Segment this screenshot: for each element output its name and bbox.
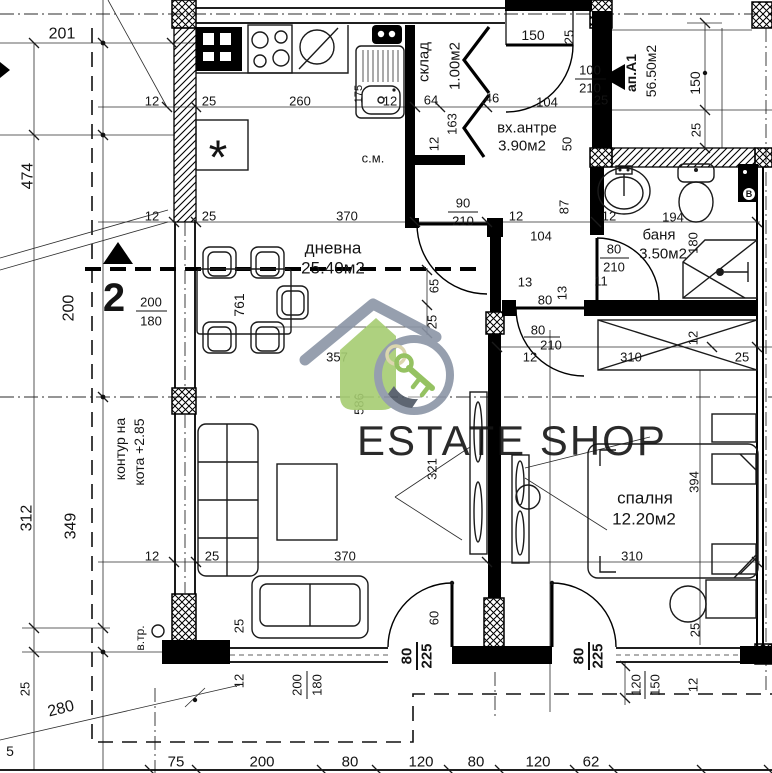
dimension-label: 163 bbox=[445, 113, 460, 135]
fridge-symbol: * bbox=[209, 132, 228, 185]
dimension-label: 260 bbox=[289, 94, 311, 109]
dimension-label: 12 bbox=[145, 209, 159, 224]
dimension-label: 180 bbox=[310, 674, 325, 696]
dimension-label: 25 bbox=[205, 549, 219, 564]
dimension-label: 46 bbox=[485, 91, 499, 106]
dimension-label: 120 bbox=[629, 674, 644, 696]
dimension-label: 80 bbox=[399, 648, 416, 665]
room-area-bath: 3.50м2 bbox=[639, 246, 687, 263]
dimension-label: 12 bbox=[427, 137, 442, 151]
room-area-bedroom: 12.20м2 bbox=[612, 510, 676, 529]
dimension-label: 65 bbox=[427, 279, 442, 293]
dimension-label: 175 bbox=[353, 85, 365, 103]
dimension-label: 349 bbox=[63, 513, 80, 540]
room-label-entry: вх.антре bbox=[497, 120, 557, 137]
dimension-label: 62 bbox=[583, 754, 600, 771]
dimension-label: 201 bbox=[49, 26, 76, 43]
dimension-label: 194 bbox=[662, 210, 684, 225]
dimension-label: 80 bbox=[531, 323, 545, 338]
dimension-label: 150 bbox=[648, 674, 663, 696]
dimension-label: 761 bbox=[231, 293, 247, 317]
room-label-living: дневна bbox=[305, 239, 362, 258]
elevation-note: контур на bbox=[112, 418, 128, 481]
dimension-label: 150 bbox=[521, 27, 545, 43]
dimension-label: 225 bbox=[419, 643, 436, 668]
dimension-label: 25 bbox=[562, 30, 577, 44]
dimension-label: 310 bbox=[620, 350, 642, 365]
small-appliance bbox=[372, 25, 402, 44]
room-area-entry: 3.90м2 bbox=[498, 138, 546, 155]
dimension-label: 180 bbox=[686, 232, 701, 254]
dimension-label: 75 bbox=[168, 754, 185, 771]
dimension-label: 370 bbox=[336, 209, 358, 224]
dimension-label: 100 bbox=[579, 63, 601, 78]
dimension-label: 12 bbox=[232, 674, 247, 688]
dimension-label: 210 bbox=[540, 338, 562, 353]
dimension-label: 90 bbox=[456, 196, 470, 211]
dimension-label: 80 bbox=[342, 754, 359, 771]
dimension-label: 120 bbox=[525, 754, 550, 771]
dimension-label: 310 bbox=[621, 549, 643, 564]
dimension-label: 12 bbox=[602, 209, 616, 224]
room-area-living: 25.40м2 bbox=[301, 259, 365, 278]
dimension-label: 370 bbox=[334, 549, 356, 564]
floor-plan-page: 2014742003123492802552200180контур накот… bbox=[0, 0, 772, 773]
dimension-label: 12 bbox=[145, 549, 159, 564]
dimension-label: 80 bbox=[607, 242, 621, 257]
dimension-label: 25 bbox=[735, 350, 749, 365]
dimension-label: 87 bbox=[557, 200, 572, 214]
dimension-label: 25 bbox=[594, 93, 608, 108]
dimension-label: 80 bbox=[468, 754, 485, 771]
electrical-panel bbox=[196, 27, 242, 71]
dimension-label: 25 bbox=[18, 682, 33, 696]
dimension-label: 394 bbox=[687, 471, 702, 493]
dimension-label: 225 bbox=[590, 643, 607, 668]
dimension-label: 312 bbox=[19, 505, 36, 532]
dimension-label: 120 bbox=[408, 754, 433, 771]
dimension-label: 12 bbox=[523, 350, 537, 365]
washing-machine-label: с.м. bbox=[362, 151, 385, 166]
dimension-label: 25 bbox=[202, 209, 216, 224]
elevation-note: кота +2.85 bbox=[131, 418, 147, 485]
dimension-label: 104 bbox=[530, 229, 552, 244]
dimension-label: 60 bbox=[427, 611, 442, 625]
dimension-label: 12 bbox=[686, 331, 701, 345]
dimension-label: 200 bbox=[61, 295, 78, 322]
dimension-label: 474 bbox=[20, 163, 37, 190]
dimension-label: 25 bbox=[689, 123, 704, 137]
dimension-label: 210 bbox=[603, 260, 625, 275]
section-marker-2: 2 bbox=[103, 276, 125, 320]
watermark-text: ESTATE SHOP bbox=[357, 417, 667, 464]
dimension-label: 5 bbox=[6, 743, 14, 759]
dimension-label: 180 bbox=[140, 314, 162, 329]
floor-plan-canvas: 2014742003123492802552200180контур накот… bbox=[0, 0, 772, 773]
dimension-label: 13 bbox=[555, 286, 570, 300]
apartment-label: ап.А1 bbox=[623, 54, 639, 92]
dimension-label: 200 bbox=[140, 295, 162, 310]
dimension-label: 150 bbox=[687, 71, 703, 95]
room-label-bath: баня bbox=[643, 227, 676, 244]
dimension-label: 64 bbox=[424, 93, 438, 108]
dimension-label: 25 bbox=[202, 94, 216, 109]
boiler-label: B bbox=[746, 189, 753, 199]
dimension-label: 210 bbox=[452, 214, 474, 229]
dimension-label: 50 bbox=[560, 137, 575, 151]
dimension-label: 12 bbox=[145, 94, 159, 109]
dimension-label: 11 bbox=[594, 274, 608, 289]
room-area-storage: 1.00м2 bbox=[447, 42, 464, 90]
dimension-label: 13 bbox=[518, 275, 532, 290]
dimension-label: 25 bbox=[232, 619, 247, 633]
dimension-label: 12 bbox=[686, 678, 701, 692]
room-label-bedroom: спалня bbox=[617, 489, 673, 508]
dimension-label: 80 bbox=[571, 648, 588, 665]
dimension-label: 12 bbox=[509, 209, 523, 224]
dimension-label: 104 bbox=[536, 95, 558, 110]
dimension-label: 12 bbox=[383, 94, 397, 109]
dimension-label: 25 bbox=[688, 623, 703, 637]
dimension-label: 200 bbox=[249, 754, 274, 771]
room-label-storage: склад bbox=[416, 42, 433, 82]
dimension-label: 200 bbox=[290, 674, 305, 696]
apartment-area: 56.50м2 bbox=[643, 45, 659, 98]
dimension-label: 80 bbox=[538, 293, 552, 308]
vent-pipe-label: в.тр. bbox=[133, 625, 147, 650]
